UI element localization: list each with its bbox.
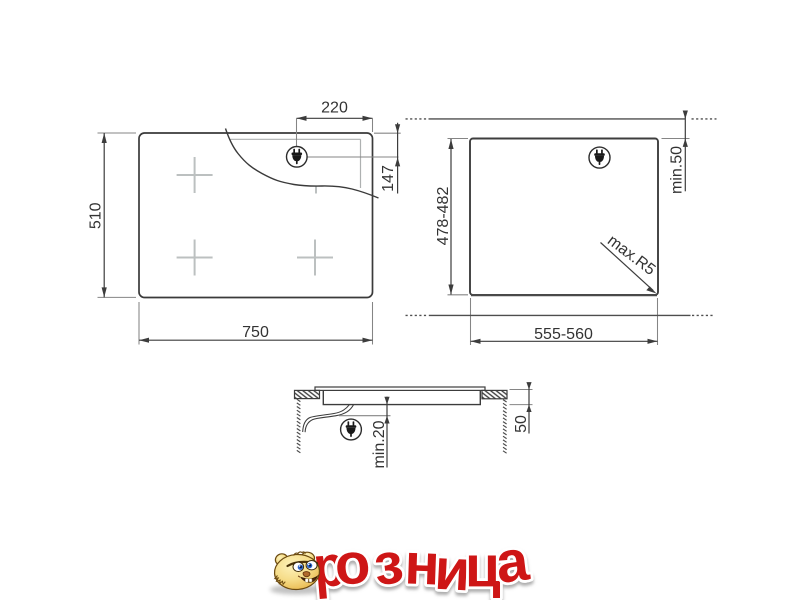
svg-text:478-482: 478-482 <box>435 187 452 246</box>
svg-text:min.20: min.20 <box>371 420 388 468</box>
svg-text:а: а <box>492 527 533 596</box>
svg-text:о: о <box>332 530 372 597</box>
svg-text:555-560: 555-560 <box>534 326 593 343</box>
svg-text:510: 510 <box>88 202 105 229</box>
svg-text:147: 147 <box>380 165 397 192</box>
svg-text:220: 220 <box>321 100 348 117</box>
svg-text:min.50: min.50 <box>669 146 686 194</box>
svg-text:750: 750 <box>242 324 269 341</box>
svg-text:50: 50 <box>513 415 530 433</box>
svg-text:з: з <box>370 530 407 598</box>
